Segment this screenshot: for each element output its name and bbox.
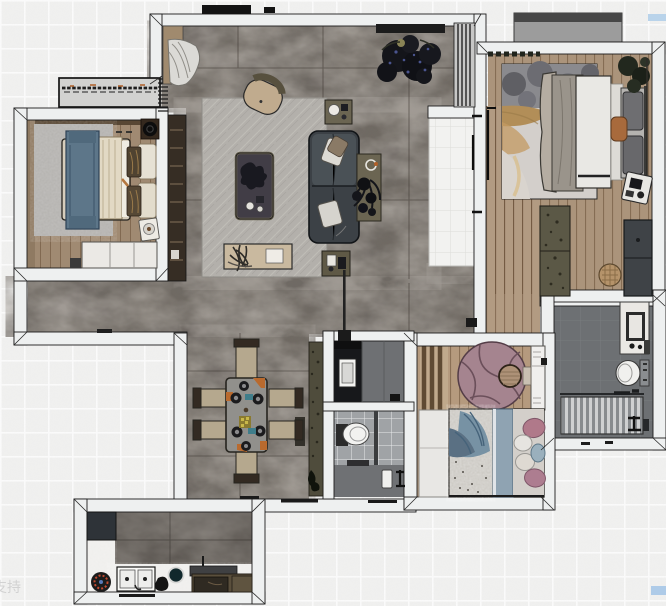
svg-text:支持: 支持 <box>0 579 21 595</box>
